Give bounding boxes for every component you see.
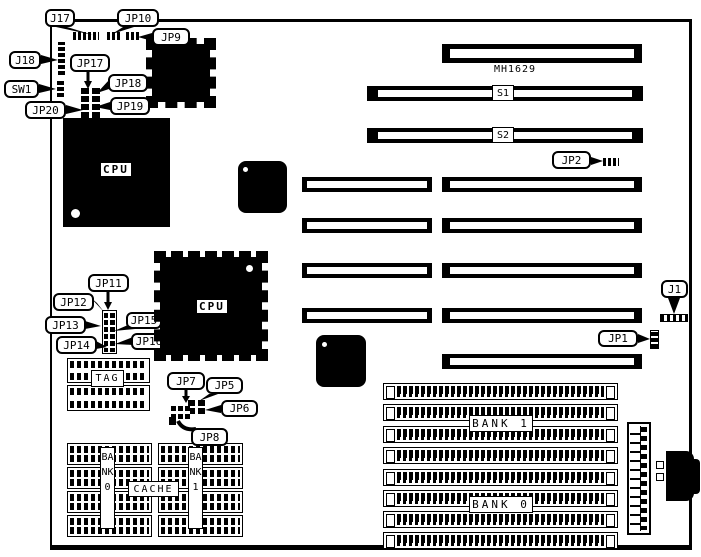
callout-jp18: JP18 [108,74,148,92]
callout-jp5: JP5 [206,377,243,394]
callout-j17: J17 [45,9,75,27]
motherboard-diagram: MH1629 S1 S2 CPU CPU TAG [0,0,701,557]
tag-label: TAG [91,370,124,387]
callout-jp14: JP14 [56,336,97,354]
callout-jp8: JP8 [191,428,228,446]
callout-jp13: JP13 [45,316,86,334]
callout-jp17: JP17 [70,54,110,72]
cache-bank1-label: BANK1 [188,447,203,529]
callout-jp20: JP20 [25,101,66,119]
keyboard-connector [692,459,700,494]
callout-j18: J18 [9,51,41,69]
simm-bank1-label: BANK 1 [469,415,533,432]
keyboard-connector [666,451,694,501]
callout-j1: J1 [661,280,688,298]
callout-jp2: JP2 [552,151,591,169]
slot-s1-label: S1 [492,85,514,101]
callout-jp10: JP10 [117,9,159,27]
cache-bank0-label: BANK0 [100,447,115,529]
callout-jp12: JP12 [53,293,94,311]
callout-sw1: SW1 [4,80,39,98]
simm-bank0-label: BANK 0 [469,496,533,513]
callout-jp6: JP6 [221,400,258,417]
callout-jp11: JP11 [88,274,129,292]
callout-jp19: JP19 [110,97,150,115]
callout-jp9: JP9 [152,28,190,46]
cache-label: CACHE [128,481,179,497]
callout-jp7: JP7 [167,372,205,390]
callout-jp1: JP1 [598,330,638,347]
slot-s2-label: S2 [492,127,514,143]
